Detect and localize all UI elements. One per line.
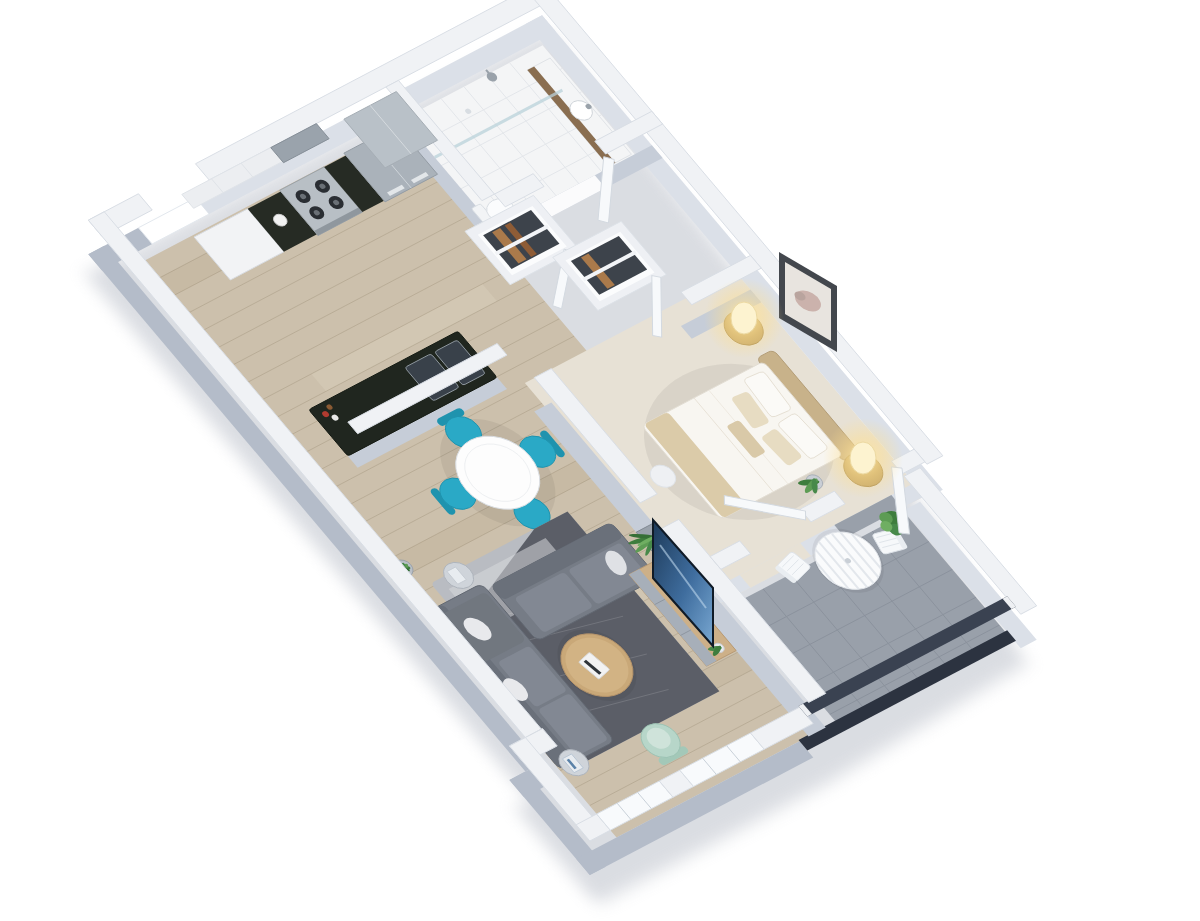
closet-b-door (652, 276, 662, 338)
lampshade (731, 302, 757, 334)
bedside-lamp-right (823, 418, 903, 498)
lampshade (850, 442, 876, 474)
floor-plan-stage (0, 0, 1200, 921)
floor-plan-render (0, 0, 1200, 921)
bedside-lamp-left (704, 278, 784, 358)
